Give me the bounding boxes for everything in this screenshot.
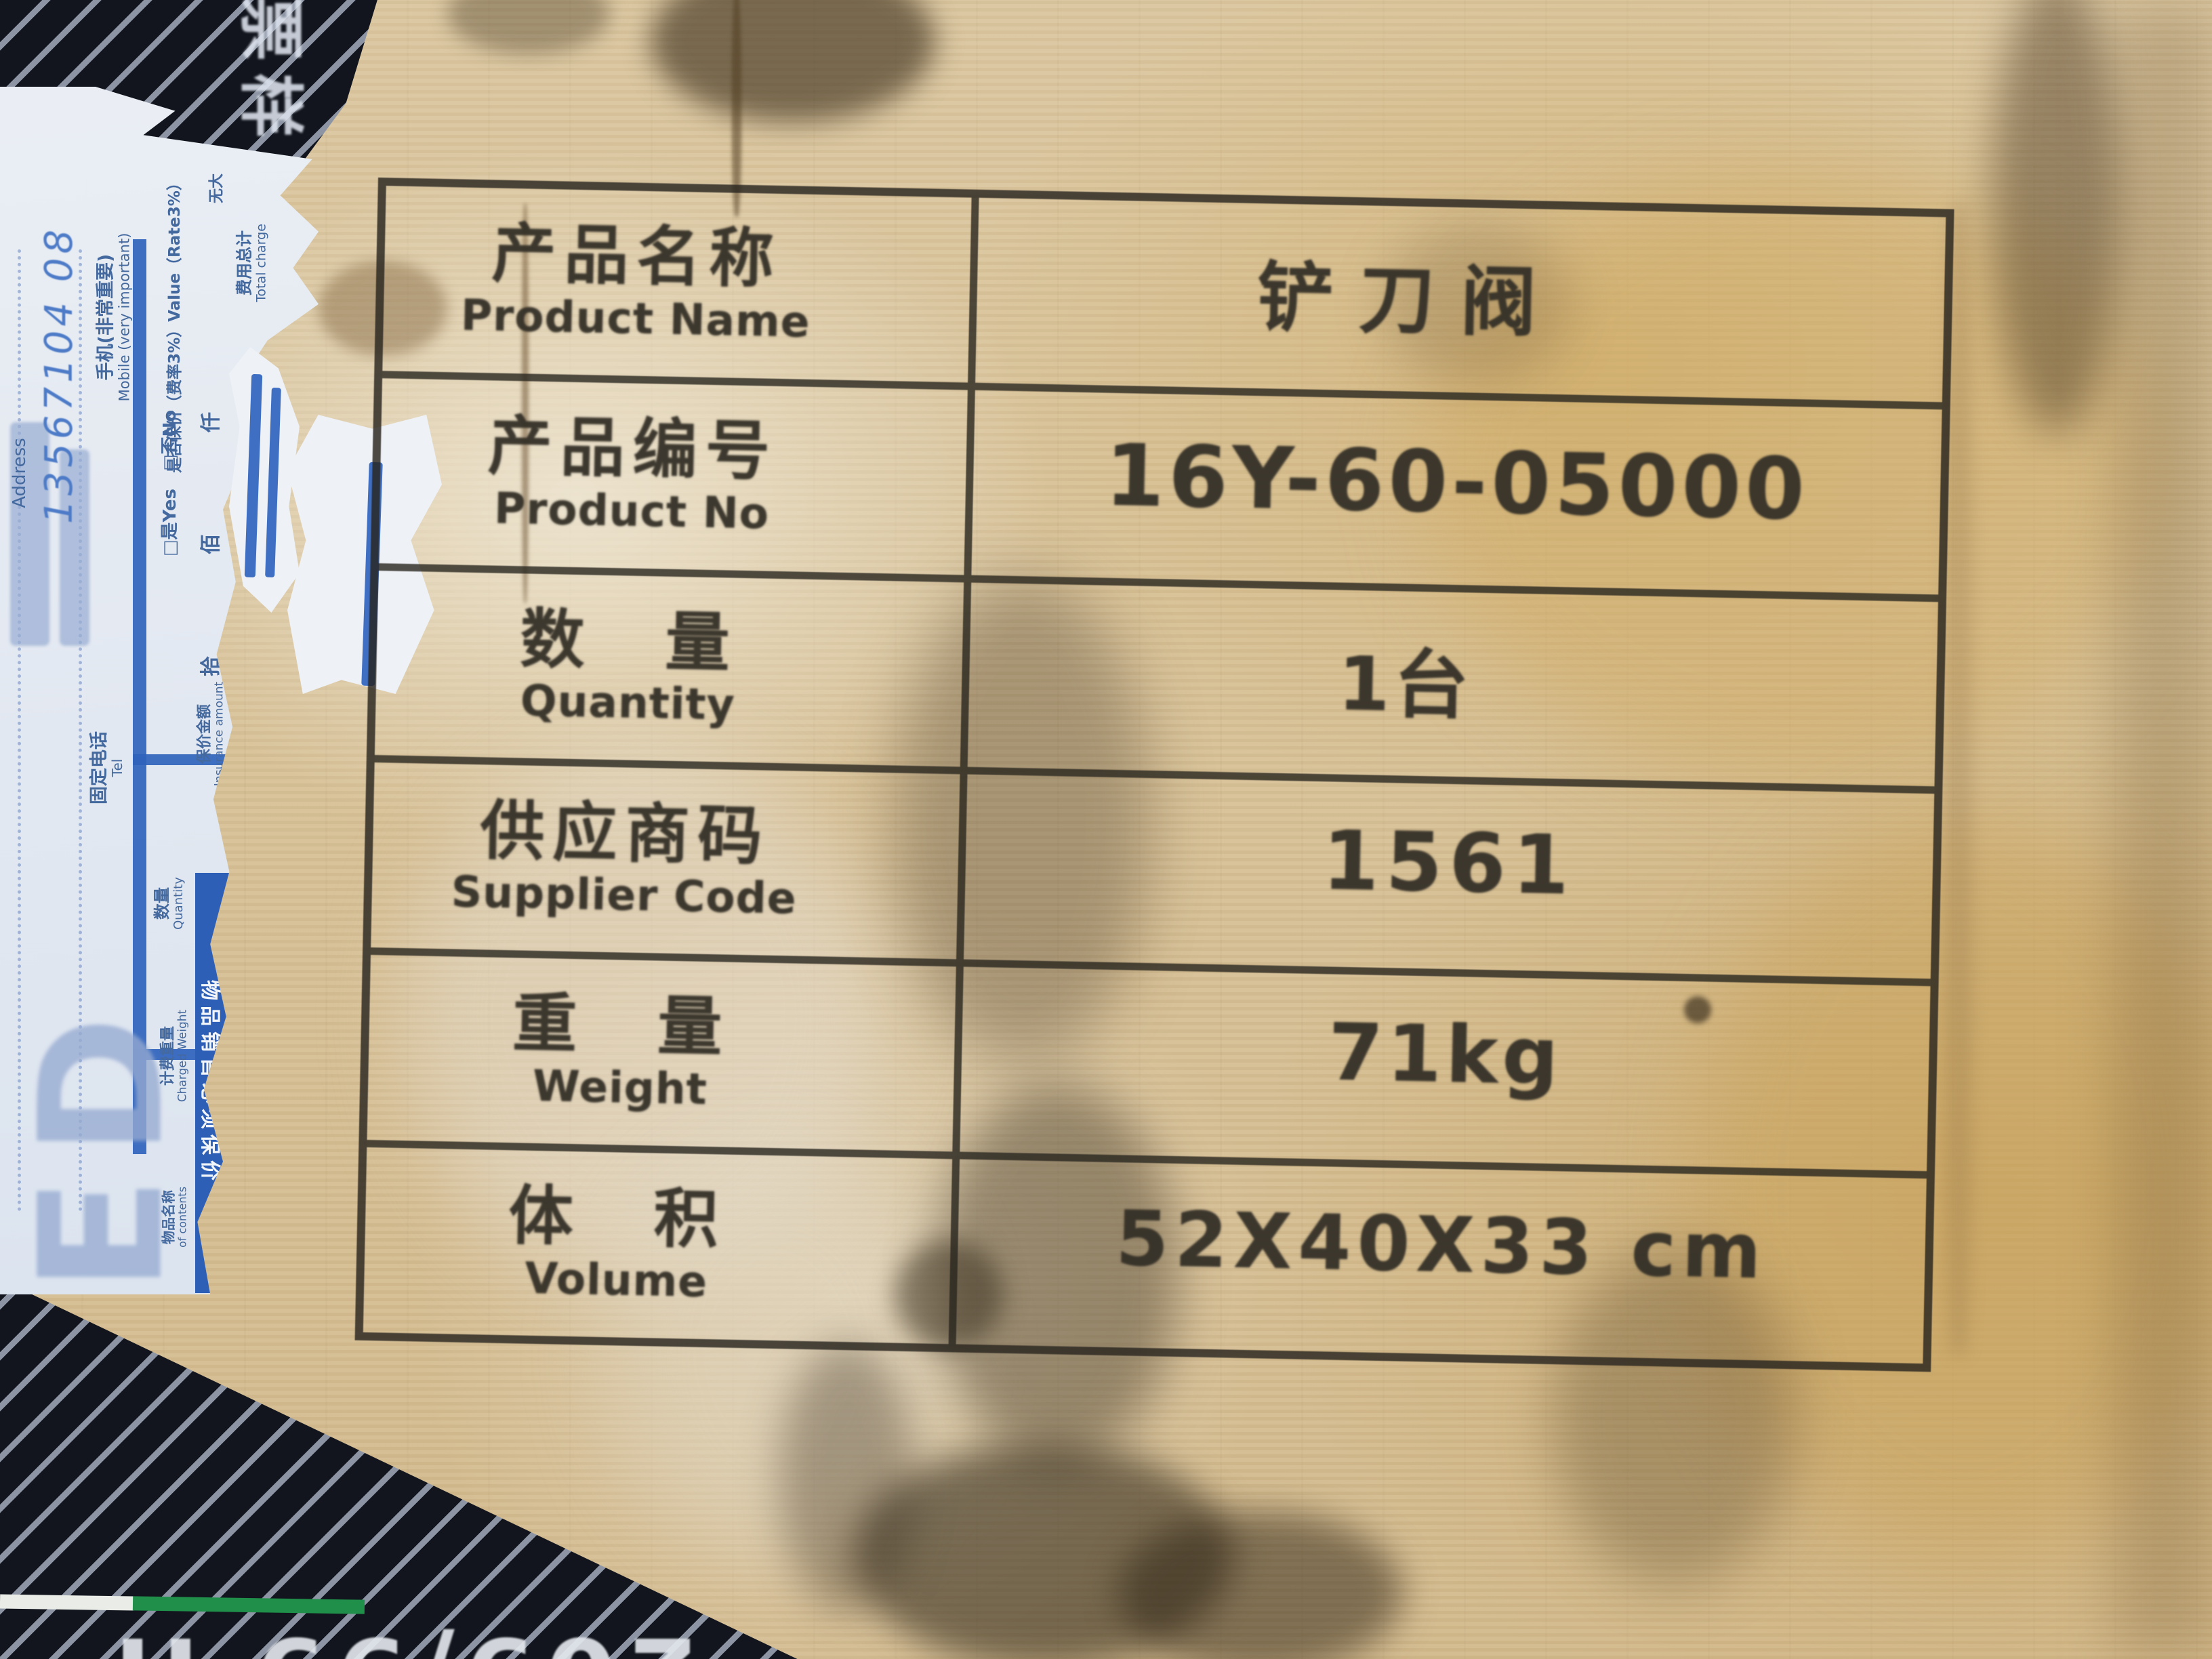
row-label: 供应商码 Supplier Code — [371, 763, 967, 960]
waybill-field-charged-weight: 计费重量Charged Weight — [160, 1010, 190, 1102]
table-row-supplier-code: 供应商码 Supplier Code 1561 — [371, 763, 1934, 987]
waybill-field-total-charge: 费用总计Total charge — [235, 224, 268, 302]
waybill-field-address: Address — [10, 438, 30, 508]
row-value-cell: 铲刀阀 — [975, 198, 1946, 402]
row-value-cell: 1561 — [964, 775, 1934, 979]
row-value-cell: 52X40X33 cm — [956, 1160, 1926, 1364]
waybill-field-mobile: 手机(非常重要)Mobile (very important) — [95, 233, 132, 402]
table-row-product-no: 产品编号 Product No 16Y-60-05000 — [378, 378, 1942, 602]
label-cn: 供应商码 — [480, 798, 771, 871]
label-en: Quantity — [520, 676, 735, 730]
table-row-product-name: 产品名称 Product Name 铲刀阀 — [382, 186, 1946, 409]
table-row-weight: 重 量 Weight 71kg — [367, 955, 1930, 1179]
torn-paper-scrap — [229, 347, 300, 613]
handwritten-phone-number: 13567104 08 — [38, 226, 81, 524]
waybill-field-tel: 固定电话Tel — [89, 731, 125, 804]
waybill-field-quantity: 数量Quantity — [153, 877, 186, 930]
table-row-volume: 体 积 Volume 52X40X33 cm — [363, 1147, 1927, 1364]
wood-stain — [447, 0, 610, 54]
label-en: Product No — [493, 483, 769, 538]
dark-streak — [2114, 0, 2212, 1659]
waybill-field-kg: KG — [219, 767, 234, 787]
label-en: Supplier Code — [451, 867, 797, 924]
handwritten-insurance-amount: 53 — [224, 647, 260, 687]
label-en: Volume — [525, 1254, 708, 1307]
label-cn: 产品编号 — [487, 413, 779, 486]
shipping-info-table: 产品名称 Product Name 铲刀阀 产品编号 Product No 16… — [355, 178, 1954, 1372]
row-label: 重 量 Weight — [367, 955, 963, 1151]
waybill-insured-options: □是Yes □否No — [161, 410, 181, 556]
upside-down-stencil-text: 209/99 H — [20, 1614, 698, 1659]
row-label: 产品名称 Product Name — [382, 186, 979, 382]
quantity-value: 1台 — [1337, 622, 1569, 735]
label-cn: 数 量 — [520, 606, 739, 678]
label-cn: 重 量 — [512, 991, 731, 1063]
wood-stain — [651, 0, 935, 122]
row-value-cell: 16Y-60-05000 — [971, 390, 1942, 594]
weight-value: 71kg — [1328, 1007, 1563, 1103]
scrap-blue-stroke — [245, 374, 262, 577]
row-label: 产品编号 Product No — [379, 378, 975, 575]
row-label: 体 积 Volume — [363, 1147, 960, 1344]
stencil-characters-vertical: 票样 — [229, 0, 323, 150]
row-label: 数 量 Quantity — [375, 571, 971, 767]
waybill-field-nocaps: 无大 — [208, 173, 225, 203]
label-cn: 体 积 — [508, 1183, 727, 1254]
supplier-code-value: 1561 — [1322, 815, 1577, 914]
waybill-grid-line — [133, 754, 241, 765]
label-en: Product Name — [460, 290, 811, 346]
row-value-cell: 71kg — [960, 967, 1930, 1171]
row-value-cell: 1台 — [967, 582, 1938, 786]
table-row-quantity: 数 量 Quantity 1台 — [375, 571, 1938, 794]
label-en: Weight — [532, 1061, 708, 1114]
scrap-blue-stroke — [265, 388, 281, 577]
label-cn: 产品名称 — [491, 220, 783, 293]
volume-value: 52X40X33 cm — [1115, 1195, 1768, 1296]
product-name-value: 铲刀阀 — [1256, 236, 1665, 354]
product-no-value: 16Y-60-05000 — [1104, 425, 1809, 539]
crate-photo: 票样 209/99 H ED 无大 费用总计Total charge 手机(非常… — [0, 0, 2212, 1659]
waybill-blue-banner: 物品销售必须保价 — [195, 873, 229, 1293]
waybill-field-insurance-amount: 保价金额Insurance amount — [197, 682, 227, 786]
white-rule-line — [0, 1594, 134, 1610]
torn-waybill-label: ED 无大 费用总计Total charge 手机(非常重要)Mobile (v… — [0, 87, 319, 1294]
ink-smudge — [779, 1342, 915, 1613]
waybill-field-contents: 物品名称of contents — [161, 1187, 188, 1248]
waybill-digit-columns: 拾 佰 仟 — [200, 371, 224, 676]
